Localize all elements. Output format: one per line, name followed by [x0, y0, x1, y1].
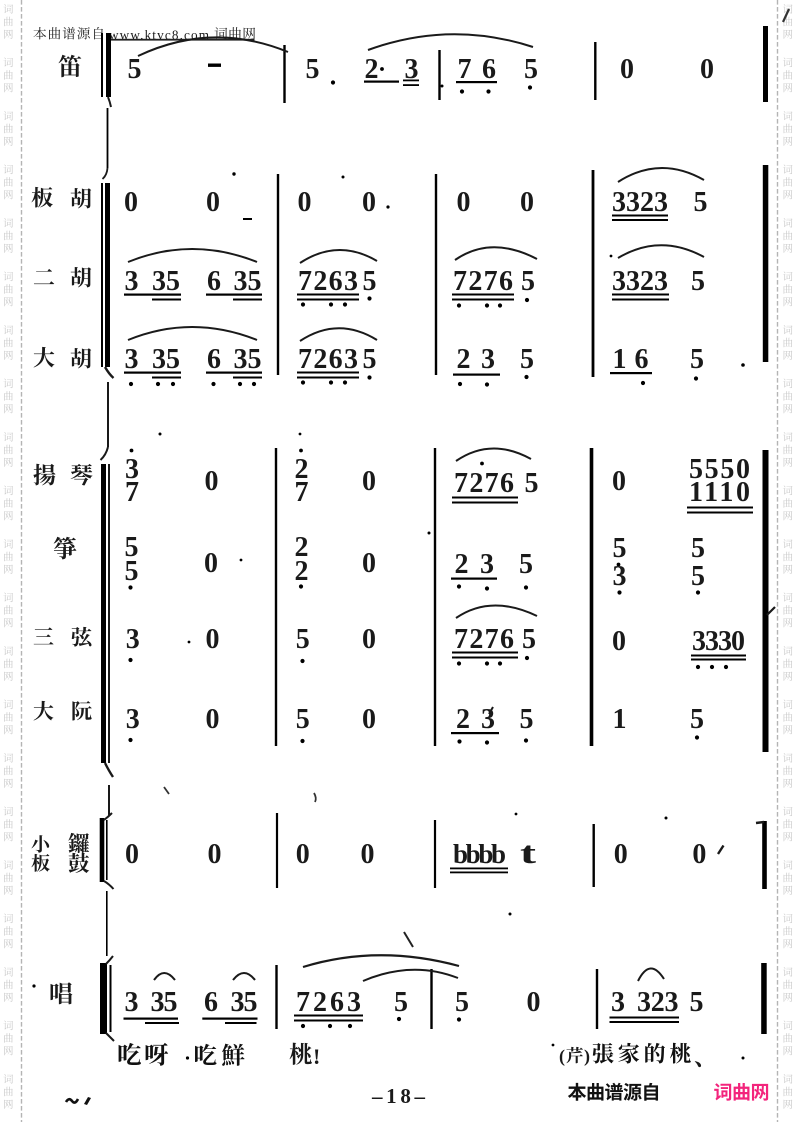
- svg-text:5: 5: [691, 266, 705, 297]
- svg-text:7263: 7263: [298, 266, 358, 297]
- svg-text:0: 0: [298, 187, 312, 218]
- svg-text:0: 0: [361, 839, 375, 870]
- svg-text:5: 5: [296, 624, 310, 655]
- svg-text:3: 3: [126, 624, 140, 655]
- svg-text:5: 5: [694, 187, 708, 218]
- svg-text:(: (: [559, 1046, 565, 1067]
- svg-text:3: 3: [125, 266, 139, 297]
- svg-text:3323: 3323: [612, 187, 668, 218]
- svg-text:2: 2: [457, 344, 471, 375]
- svg-text:3: 3: [480, 549, 494, 580]
- svg-text:0: 0: [362, 624, 376, 655]
- svg-text:6: 6: [207, 266, 221, 297]
- svg-text:5: 5: [525, 468, 539, 499]
- svg-text:6: 6: [204, 987, 218, 1018]
- svg-text:7276: 7276: [454, 468, 514, 499]
- svg-text:2: 2: [295, 556, 309, 587]
- svg-text:6: 6: [207, 344, 221, 375]
- svg-text:0: 0: [457, 187, 471, 218]
- svg-text:6: 6: [635, 344, 649, 375]
- svg-text:3: 3: [125, 344, 139, 375]
- svg-text:7276: 7276: [454, 624, 514, 655]
- svg-text:5: 5: [691, 533, 705, 564]
- svg-text:5: 5: [394, 987, 408, 1018]
- svg-text:7: 7: [458, 54, 472, 85]
- svg-text:0: 0: [362, 466, 376, 497]
- svg-text:5: 5: [519, 549, 533, 580]
- svg-text:0: 0: [205, 466, 219, 497]
- svg-text:!: !: [313, 1044, 320, 1069]
- svg-text:0: 0: [362, 548, 376, 579]
- svg-text:0: 0: [620, 54, 634, 85]
- svg-text:5: 5: [524, 54, 538, 85]
- svg-text:0: 0: [527, 987, 541, 1018]
- svg-text:1: 1: [613, 704, 627, 735]
- svg-text:5: 5: [128, 54, 142, 85]
- svg-text:7: 7: [125, 477, 139, 508]
- svg-text:35: 35: [152, 344, 180, 375]
- svg-text:5: 5: [520, 344, 534, 375]
- svg-text:35: 35: [151, 987, 178, 1018]
- svg-text:35: 35: [231, 987, 258, 1018]
- svg-text:0: 0: [612, 626, 626, 657]
- svg-text:5: 5: [522, 624, 536, 655]
- svg-text:0: 0: [206, 624, 220, 655]
- svg-text:3: 3: [481, 344, 495, 375]
- svg-text:0: 0: [208, 839, 222, 870]
- svg-text:3323: 3323: [612, 266, 668, 297]
- svg-text:0: 0: [520, 187, 534, 218]
- svg-text:3330: 3330: [692, 626, 745, 657]
- svg-text:0: 0: [362, 187, 376, 218]
- svg-text:5: 5: [363, 266, 377, 297]
- svg-text:35: 35: [234, 344, 262, 375]
- svg-text:5: 5: [296, 704, 310, 735]
- svg-text:0: 0: [692, 839, 706, 870]
- svg-text:3: 3: [613, 561, 627, 592]
- svg-text:5: 5: [520, 704, 534, 735]
- svg-text:0: 0: [204, 548, 218, 579]
- svg-text:bbbb: bbbb: [453, 839, 506, 869]
- svg-text:3: 3: [125, 987, 139, 1018]
- svg-text:5: 5: [690, 344, 704, 375]
- svg-text:5: 5: [363, 344, 377, 375]
- svg-text:0: 0: [125, 839, 139, 870]
- svg-text:0: 0: [296, 839, 310, 870]
- svg-text:0: 0: [124, 187, 138, 218]
- svg-text:0: 0: [206, 704, 220, 735]
- svg-text:5: 5: [455, 987, 469, 1018]
- svg-text:323: 323: [637, 987, 679, 1018]
- svg-text:0: 0: [612, 466, 626, 497]
- svg-text:6: 6: [482, 54, 496, 85]
- svg-text:7263: 7263: [298, 344, 358, 375]
- svg-text:): ): [584, 1046, 590, 1067]
- svg-text:7: 7: [295, 477, 309, 508]
- svg-text:t: t: [520, 835, 537, 870]
- svg-text:5: 5: [690, 987, 704, 1018]
- svg-text:0: 0: [362, 704, 376, 735]
- svg-text:5: 5: [690, 704, 704, 735]
- svg-text:35: 35: [234, 266, 262, 297]
- svg-text:35: 35: [152, 266, 180, 297]
- svg-text:2: 2: [455, 549, 469, 580]
- svg-text:0: 0: [700, 54, 714, 85]
- svg-text:2: 2: [365, 54, 379, 85]
- svg-text:1: 1: [613, 344, 627, 375]
- svg-text:5: 5: [125, 556, 139, 587]
- svg-text:5: 5: [521, 266, 535, 297]
- svg-text:5: 5: [691, 561, 705, 592]
- svg-text:1110: 1110: [689, 477, 750, 508]
- svg-text:0: 0: [206, 187, 220, 218]
- svg-text:3: 3: [126, 704, 140, 735]
- svg-text:2: 2: [456, 704, 470, 735]
- svg-text:7276: 7276: [453, 266, 513, 297]
- svg-text:0: 0: [614, 839, 628, 870]
- svg-text:5: 5: [306, 54, 320, 85]
- svg-text:5: 5: [613, 533, 627, 564]
- svg-text:3: 3: [611, 987, 625, 1018]
